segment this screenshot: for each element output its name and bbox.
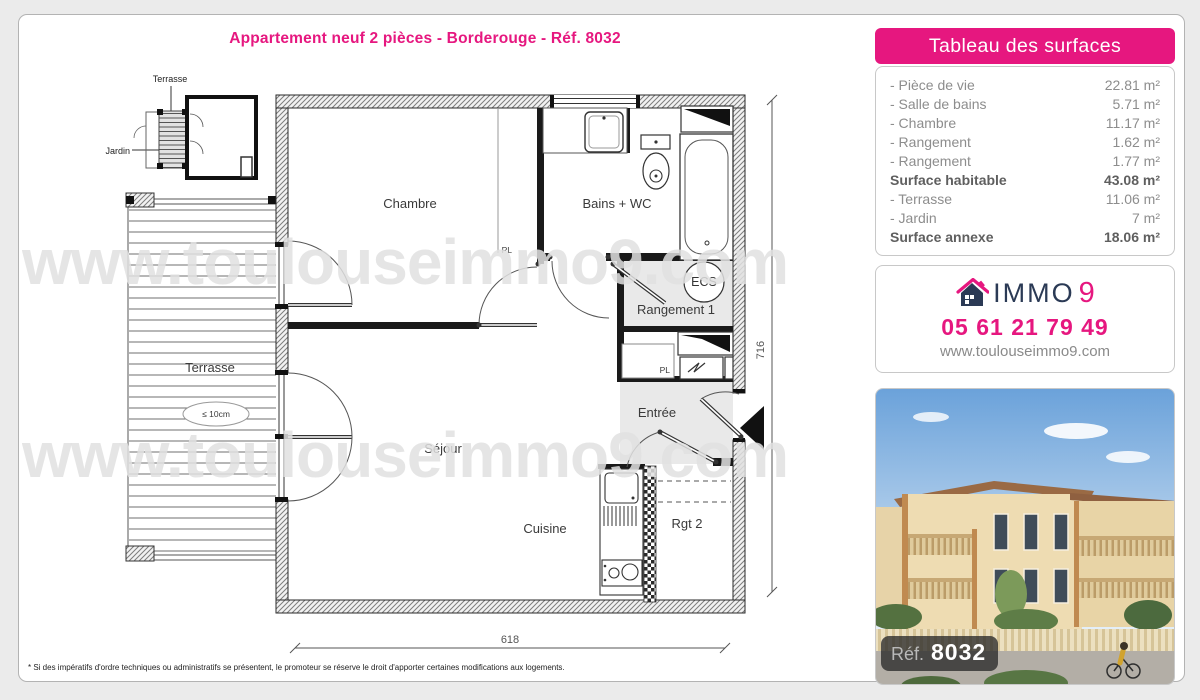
agency-logo: IMMO9	[876, 276, 1174, 310]
pl1-label: PL	[502, 245, 513, 255]
ecs-label: ECS	[691, 275, 717, 289]
ref-badge: Réf. 8032	[881, 636, 998, 671]
legal-footnote: * Si des impératifs d'ordre techniques o…	[28, 663, 565, 672]
minimap-jardin-label: Jardin	[105, 146, 130, 156]
flyer-page: Appartement neuf 2 pièces - Borderouge -…	[0, 0, 1200, 700]
storage-shelves	[658, 481, 731, 502]
brand-9-text: 9	[1079, 277, 1095, 310]
surface-row: - Rangement1.77 m²	[890, 152, 1160, 171]
dimension-height-label: 716	[755, 341, 767, 359]
ref-label: Réf.	[891, 644, 924, 665]
rangement1-label: Rangement 1	[637, 302, 715, 317]
entree-label: Entrée	[638, 405, 676, 420]
sejour-label: Séjour	[424, 441, 462, 456]
house-icon	[955, 278, 989, 308]
terrace-area: ≤ 10cm Terrasse	[126, 193, 276, 561]
agency-website: www.toulouseimmo9.com	[876, 343, 1174, 360]
terrasse-label: Terrasse	[185, 360, 235, 375]
ref-number: 8032	[931, 639, 986, 666]
rgt2-label: Rgt 2	[671, 516, 702, 531]
agency-card: IMMO9 05 61 21 79 49 www.toulouseimmo9.c…	[875, 265, 1175, 373]
surface-row: - Chambre11.17 m²	[890, 114, 1160, 133]
dimension-width-label: 618	[501, 634, 519, 646]
cuisine-label: Cuisine	[523, 521, 566, 536]
pl2-label: PL	[660, 365, 671, 375]
bains-label: Bains + WC	[583, 196, 652, 211]
floor-plan: Terrasse Jardin	[0, 0, 870, 700]
minimap-terrasse-label: Terrasse	[153, 74, 188, 84]
brand-immo-text: IMMO	[993, 278, 1075, 309]
surface-total-row: Surface annexe18.06 m²	[890, 228, 1160, 247]
chambre-label: Chambre	[383, 196, 436, 211]
agency-phone: 05 61 21 79 49	[876, 314, 1174, 341]
terrace-depth-note: ≤ 10cm	[202, 409, 230, 419]
outer-walls	[276, 95, 745, 613]
surfaces-table: - Pièce de vie22.81 m² - Salle de bains5…	[875, 66, 1175, 256]
surface-row: - Rangement1.62 m²	[890, 133, 1160, 152]
surface-row: - Terrasse11.06 m²	[890, 190, 1160, 209]
site-minimap: Terrasse Jardin	[105, 74, 256, 178]
kitchen-fixtures	[600, 466, 656, 602]
bathroom-fixtures	[543, 106, 733, 260]
building-photo: Réf. 8032	[875, 388, 1175, 685]
surfaces-table-header: Tableau des surfaces	[875, 28, 1175, 64]
surface-row: - Salle de bains5.71 m²	[890, 95, 1160, 114]
dimension-height	[767, 95, 777, 597]
surface-row: - Pièce de vie22.81 m²	[890, 76, 1160, 95]
surface-row: - Jardin7 m²	[890, 209, 1160, 228]
surface-total-row: Surface habitable43.08 m²	[890, 171, 1160, 190]
